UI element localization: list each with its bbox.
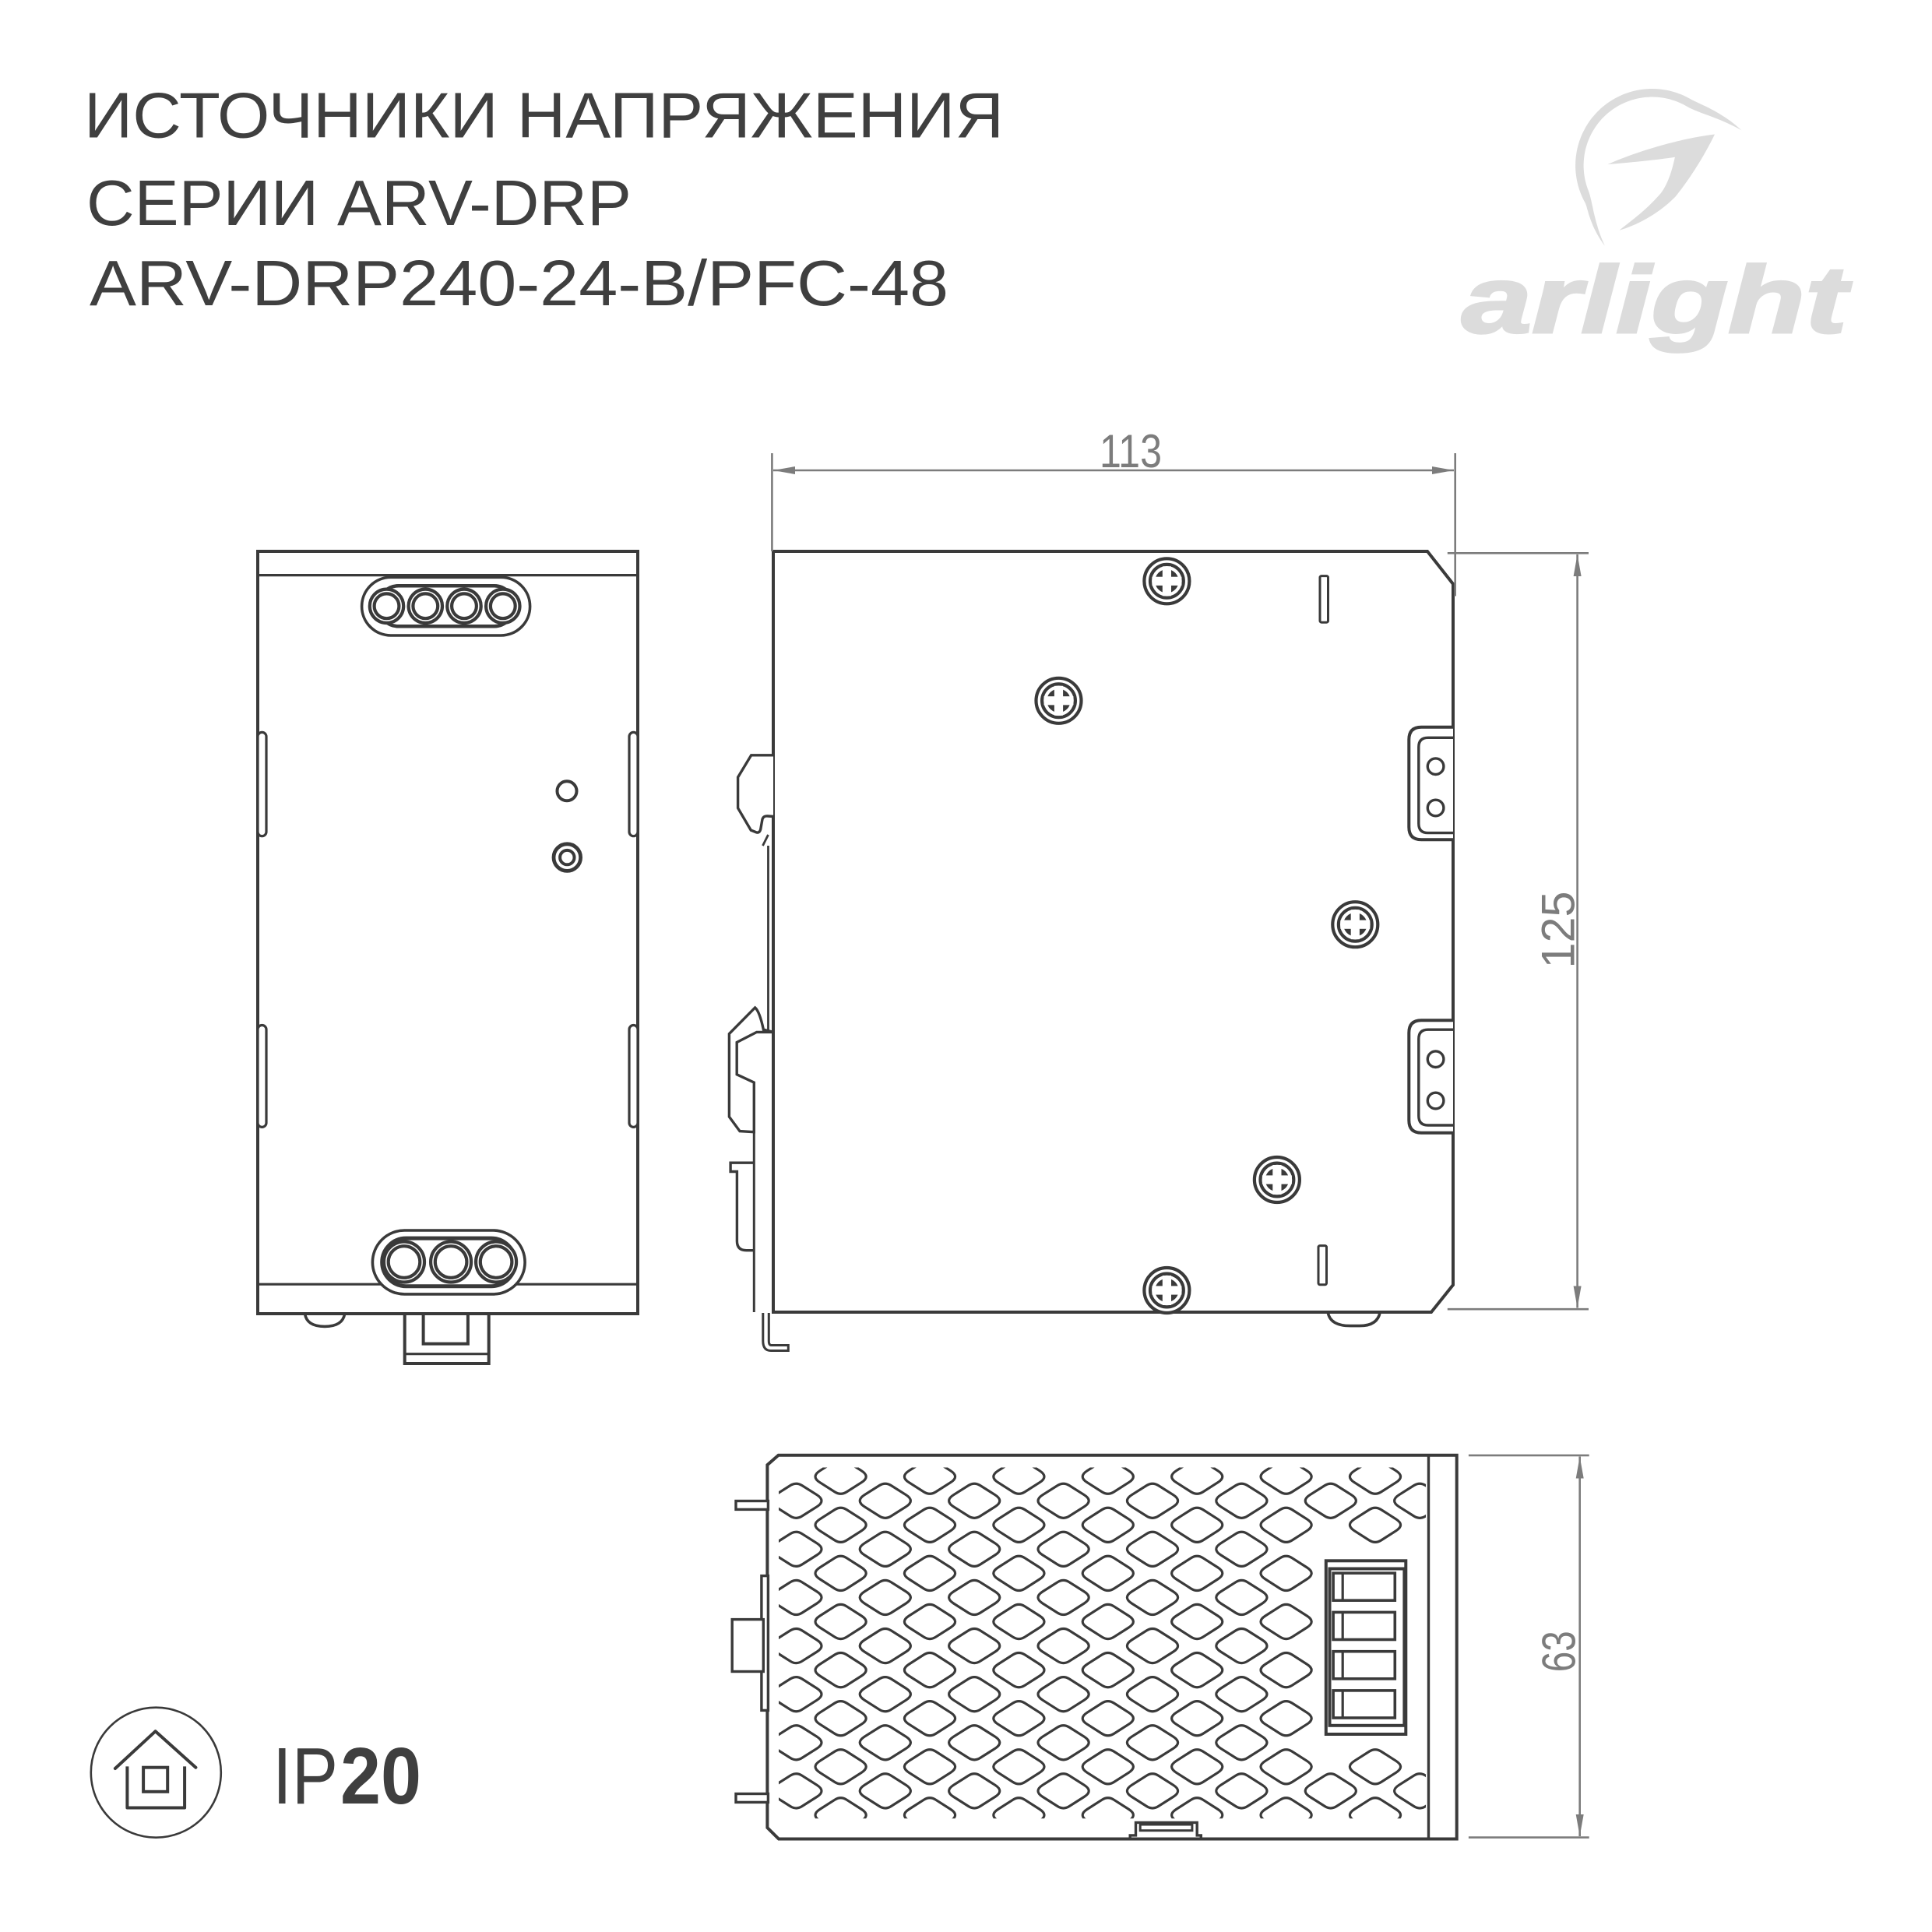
svg-text:125: 125 (1533, 892, 1585, 969)
svg-text:20: 20 (340, 1731, 421, 1821)
svg-text:arlight: arlight (1462, 247, 1852, 353)
svg-text:ARV-DRP240-24-B/PFC-48: ARV-DRP240-24-B/PFC-48 (90, 248, 948, 319)
svg-text:IP: IP (273, 1731, 338, 1821)
svg-text:СЕРИИ ARV-DRP: СЕРИИ ARV-DRP (86, 167, 632, 239)
svg-text:ИСТОЧНИКИ НАПРЯЖЕНИЯ: ИСТОЧНИКИ НАПРЯЖЕНИЯ (84, 80, 1004, 152)
svg-text:63: 63 (1533, 1631, 1585, 1672)
svg-text:113: 113 (1100, 425, 1162, 477)
